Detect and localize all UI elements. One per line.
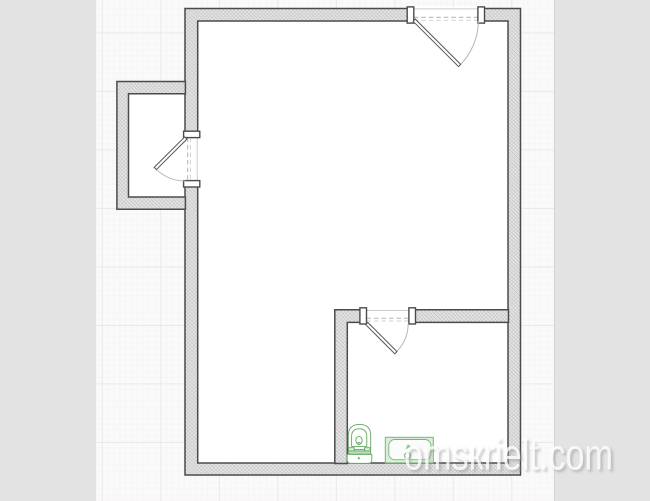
svg-text:omsкrielt.com: omsкrielt.com	[404, 431, 613, 480]
